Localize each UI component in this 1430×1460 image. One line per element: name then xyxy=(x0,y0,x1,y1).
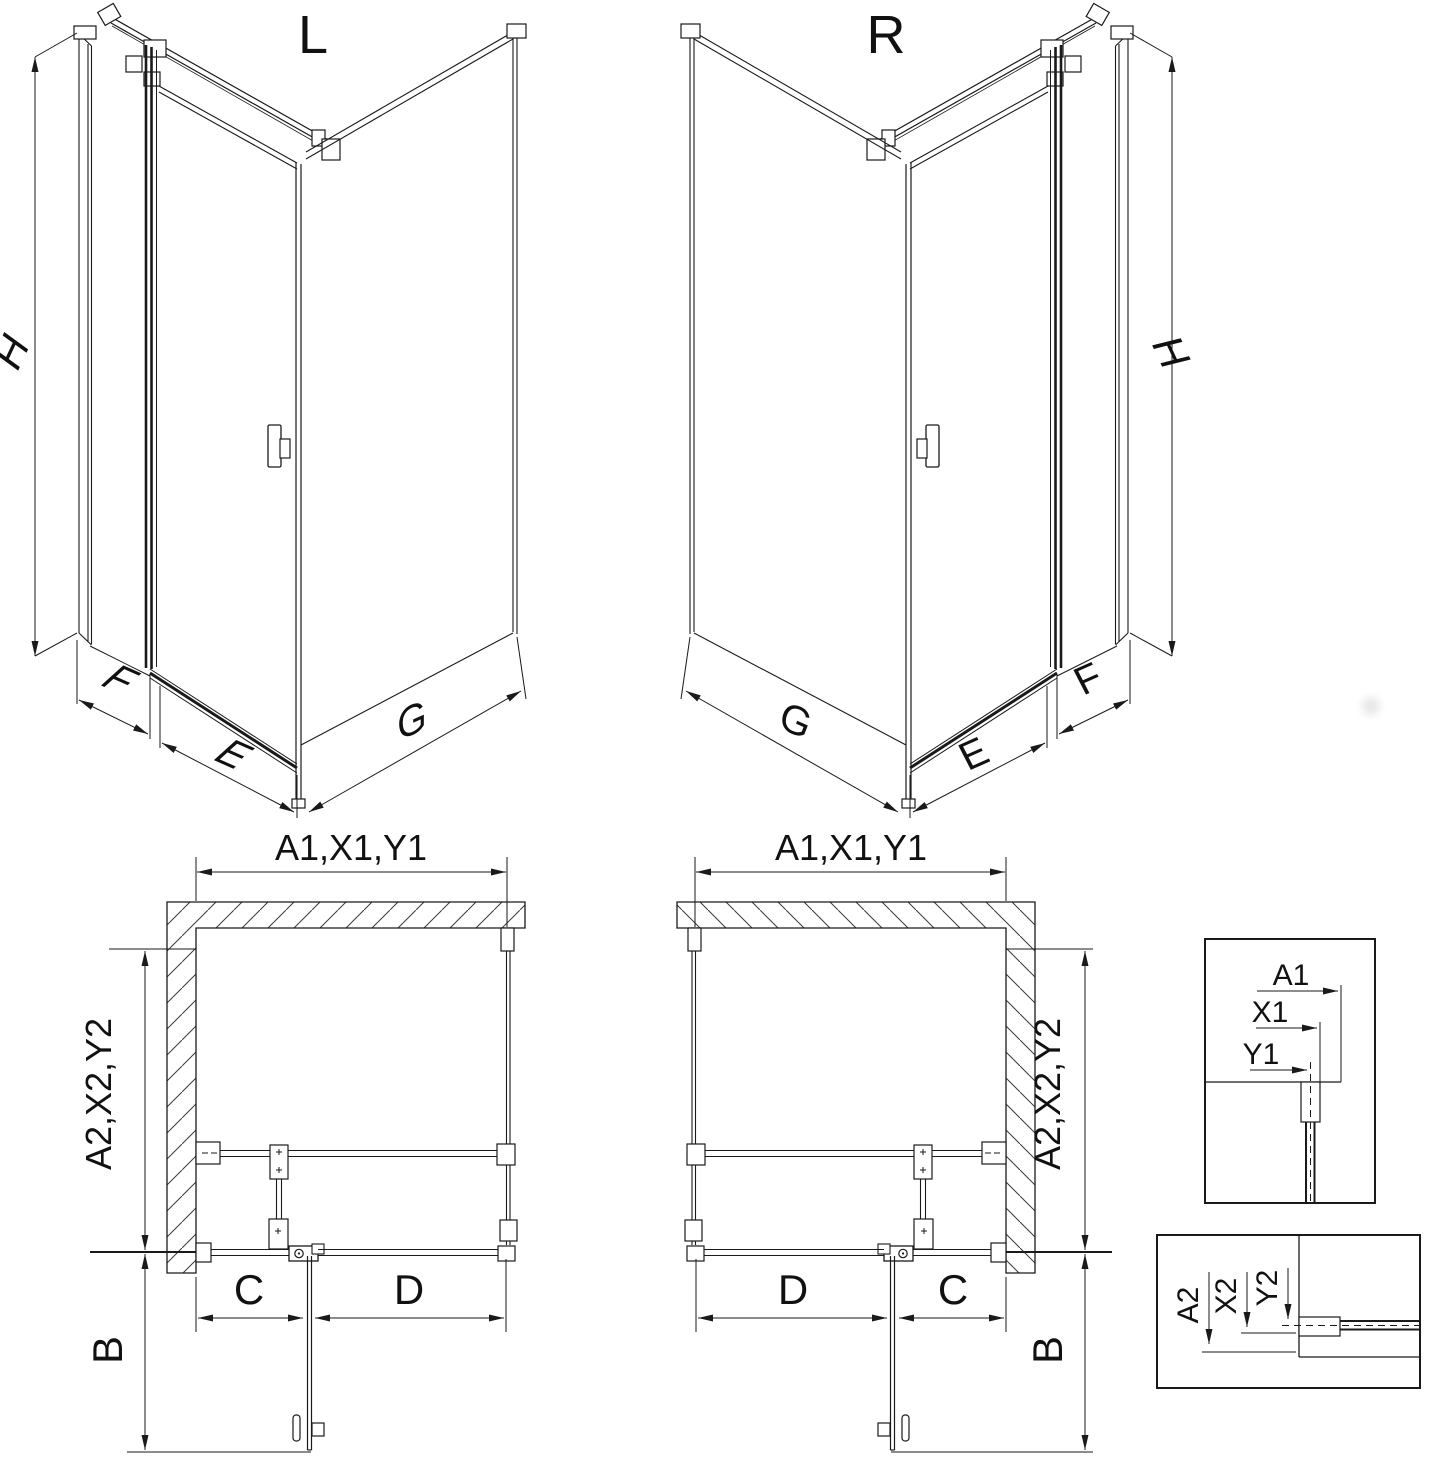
detail-label-a1: A1 xyxy=(1273,959,1310,992)
faint-artifact-dot xyxy=(1362,697,1380,715)
shower-enclosure-diagram-page: L H F E G R H F E G A1,X1,Y1 A2,X2,Y2 B … xyxy=(0,0,1430,1460)
detail-label-x2: X2 xyxy=(1210,1278,1243,1315)
variant-label-left: L xyxy=(298,5,328,65)
dim-label-b-left-plan: B xyxy=(84,1336,131,1364)
dim-label-b-right-plan: B xyxy=(1024,1336,1071,1364)
detail-label-y1: Y1 xyxy=(1243,1038,1280,1071)
dim-label-width-left-plan: A1,X1,Y1 xyxy=(275,827,427,868)
dim-label-depth-left-plan: A2,X2,Y2 xyxy=(78,1018,119,1170)
dim-label-d-left-plan: D xyxy=(394,1266,424,1313)
iso-view-right: R H F E G xyxy=(681,3,1199,818)
dim-label-width-right-plan: A1,X1,Y1 xyxy=(775,827,927,868)
detail-label-y2: Y2 xyxy=(1251,1270,1284,1307)
dim-label-d-right-plan: D xyxy=(778,1266,808,1313)
dim-label-g-left-iso: G xyxy=(393,691,430,750)
plan-view-right: A1,X1,Y1 A2,X2,Y2 B D C xyxy=(677,827,1112,1452)
variant-label-right: R xyxy=(867,5,906,65)
dim-label-depth-right-plan: A2,X2,Y2 xyxy=(1027,1018,1068,1170)
plan-view-left: A1,X1,Y1 A2,X2,Y2 B C D xyxy=(78,827,525,1452)
dim-label-f-left-iso: F xyxy=(94,655,147,703)
technical-diagram: L H F E G R H F E G A1,X1,Y1 A2,X2,Y2 B … xyxy=(0,0,1430,1460)
detail-label-x1: X1 xyxy=(1252,996,1289,1029)
detail-label-a2: A2 xyxy=(1172,1287,1205,1324)
dim-label-height-left-iso: H xyxy=(0,328,39,376)
iso-view-left: L H F E G xyxy=(0,3,526,818)
detail-box-top-measurements: A1 X1 Y1 xyxy=(1205,939,1375,1203)
dim-label-g-right-iso: G xyxy=(777,691,814,750)
dim-label-f-right-iso: F xyxy=(1062,655,1115,703)
detail-box-side-measurements: A2 X2 Y2 xyxy=(1157,1235,1420,1388)
dim-label-c-right-plan: C xyxy=(938,1266,968,1313)
dim-label-height-right-iso: H xyxy=(1143,328,1199,376)
dim-label-c-left-plan: C xyxy=(234,1266,264,1313)
